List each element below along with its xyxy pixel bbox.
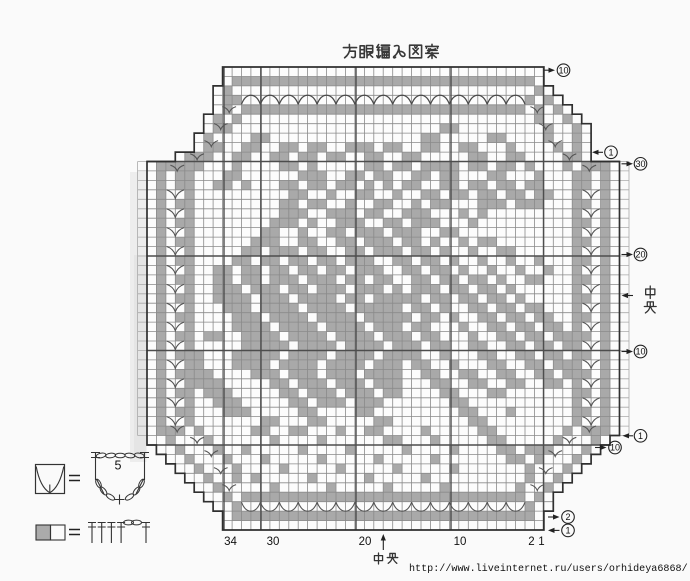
svg-text:30: 30	[267, 536, 280, 548]
svg-text:30: 30	[635, 159, 645, 169]
svg-text:1: 1	[608, 148, 613, 158]
svg-text:2: 2	[565, 512, 570, 522]
svg-text:20: 20	[635, 250, 645, 260]
svg-text:10: 10	[610, 443, 620, 453]
svg-text:1: 1	[565, 526, 570, 536]
svg-text:10: 10	[454, 536, 467, 548]
svg-text:10: 10	[558, 65, 568, 75]
svg-text:2: 2	[528, 536, 534, 548]
svg-text:1: 1	[638, 431, 643, 441]
svg-text:10: 10	[635, 347, 645, 357]
svg-text:1: 1	[538, 536, 544, 548]
svg-text:34: 34	[224, 536, 237, 548]
svg-text:5: 5	[115, 459, 122, 473]
svg-text:20: 20	[359, 536, 372, 548]
